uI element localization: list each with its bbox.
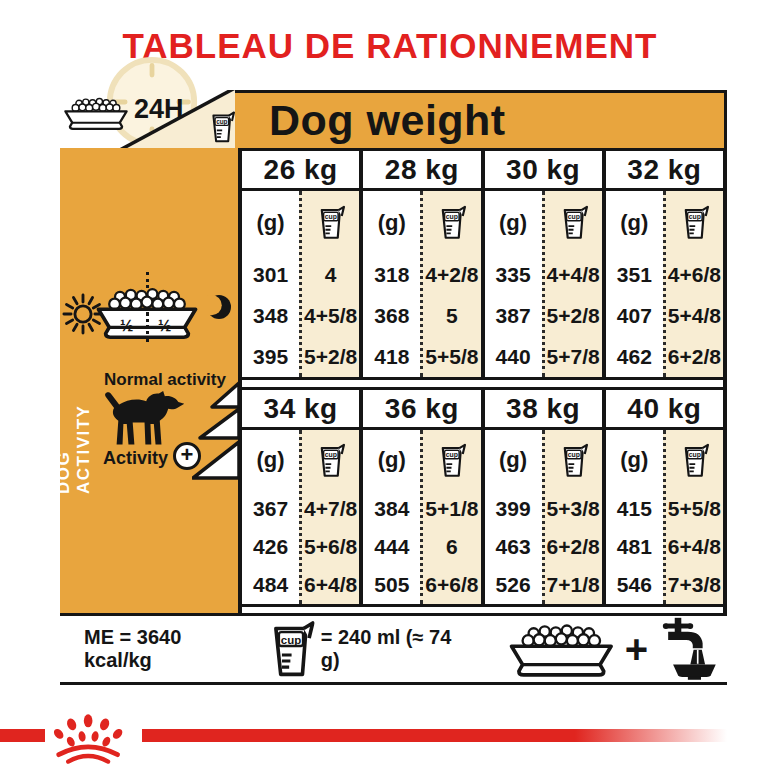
weight-header: 30 kg [485,151,602,191]
grams-unit-label: (g) [620,210,648,236]
measuring-cup-icon [559,205,588,240]
weight-column-32kg: 32 kg (g) 351 407 462 4+6/8 5 [606,151,723,377]
weights-grid: 26 kg (g) 301 348 395 4 4+5/8 [238,148,727,613]
measuring-cup-icon [316,205,345,240]
weight-header: 40 kg [606,390,723,430]
weight-header: 36 kg [363,390,480,430]
cups-value: 4+5/8 [302,295,359,336]
dog-weight-header: Dog weight [235,90,727,148]
grams-value: 463 [485,528,542,566]
cups-value: 4+6/8 [666,254,723,295]
weight-label: 34 kg [264,393,338,425]
weight-label: 30 kg [506,154,580,186]
grams-value: 384 [363,490,420,528]
grams-unit-label: (g) [620,447,648,473]
metabolizable-energy-label: ME = 3640 kcal/kg [84,626,244,672]
cups-subcolumn: 4+2/8 5 5+5/8 [420,191,480,377]
cups-value: 5+7/8 [545,336,602,377]
weight-column-34kg: 34 kg (g) 367 426 484 4+7/8 5 [242,390,363,604]
grams-unit-label: (g) [378,447,406,473]
rationing-table: 24H Dog weight DOG ACTIVITY ½ ½ [60,90,727,685]
grams-unit-label: (g) [499,210,527,236]
cups-value: 6+6/8 [423,566,480,604]
cups-value: 5+2/8 [302,336,359,377]
weight-column-26kg: 26 kg (g) 301 348 395 4 4+5/8 [242,151,363,377]
grams-value: 407 [606,295,663,336]
rationing-chart-page: TABLEAU DE RATIONNEMENT 24H Dog weight D… [0,0,780,780]
brand-stripe-left [0,729,45,742]
grams-value: 399 [485,490,542,528]
half-ration-right-label: ½ [158,317,171,335]
grams-value: 301 [242,254,299,295]
weight-label: 26 kg [264,154,338,186]
grams-value: 426 [242,528,299,566]
cups-value: 5 [423,295,480,336]
measuring-cup-icon [437,205,466,240]
food-bowl-icon [62,94,130,132]
cups-value: 6 [423,528,480,566]
grams-value: 418 [363,336,420,377]
grams-unit-label: (g) [257,210,285,236]
dog-weight-title: Dog weight [235,96,506,145]
food-bowl-icon [506,618,617,680]
activity-plus-label: Activity [103,448,168,469]
cups-value: 5+3/8 [545,490,602,528]
weight-label: 28 kg [385,154,459,186]
measuring-cup-icon [437,443,466,478]
cups-value: 7+3/8 [666,566,723,604]
weight-header: 38 kg [485,390,602,430]
weight-header: 32 kg [606,151,723,191]
cups-subcolumn: 4+4/8 5+2/8 5+7/8 [542,191,602,377]
table-header-band: 24H Dog weight [60,90,727,148]
weight-label: 36 kg [385,393,459,425]
cups-value: 7+1/8 [545,566,602,604]
cups-value: 5+5/8 [666,490,723,528]
cup-equivalence-label: = 240 ml (≈ 74 g) [321,626,466,672]
grams-unit-label: (g) [257,447,285,473]
measuring-cup-icon [316,443,345,478]
cups-value: 4+7/8 [302,490,359,528]
weight-column-40kg: 40 kg (g) 415 481 546 5+5/8 6 [606,390,723,604]
grams-subcolumn: (g) 415 481 546 [606,430,663,604]
grams-unit-label: (g) [499,447,527,473]
grams-subcolumn: (g) 351 407 462 [606,191,663,377]
grams-subcolumn: (g) 399 463 526 [485,430,542,604]
dog-silhouette-icon [98,390,186,448]
cups-value: 6+4/8 [666,528,723,566]
grams-value: 415 [606,490,663,528]
weights-section-2: 34 kg (g) 367 426 484 4+7/8 5 [242,387,723,607]
cups-value: 5+1/8 [423,490,480,528]
grams-value: 387 [485,295,542,336]
cups-value: 5+6/8 [302,528,359,566]
dog-activity-sidebar: DOG ACTIVITY ½ ½ Normal activity Activit… [60,148,238,613]
grams-subcolumn: (g) 301 348 395 [242,191,299,377]
measuring-cup-icon [208,110,235,144]
measuring-cup-icon [266,620,315,678]
section-gap [242,380,723,387]
daily-ration-label: 24H [134,94,184,125]
grams-value: 351 [606,254,663,295]
weight-column-28kg: 28 kg (g) 318 368 418 4+2/8 5 [363,151,484,377]
grams-value: 348 [242,295,299,336]
cups-subcolumn: 5+3/8 6+2/8 7+1/8 [542,430,602,604]
cups-subcolumn: 4+6/8 5+4/8 6+2/8 [663,191,723,377]
grams-value: 484 [242,566,299,604]
weight-column-38kg: 38 kg (g) 399 463 526 5+3/8 6 [485,390,606,604]
cups-value: 6+4/8 [302,566,359,604]
measuring-cup-icon [680,443,709,478]
grams-value: 505 [363,566,420,604]
weight-header: 26 kg [242,151,359,191]
weight-column-30kg: 30 kg (g) 335 387 440 4+4/8 5 [485,151,606,377]
grams-value: 318 [363,254,420,295]
activity-ramp-icons [192,381,240,481]
half-ration-left-label: ½ [120,317,133,335]
grams-subcolumn: (g) 335 387 440 [485,191,542,377]
measuring-cup-icon [559,443,588,478]
cups-value: 5+2/8 [545,295,602,336]
grams-value: 462 [606,336,663,377]
cups-subcolumn: 5+5/8 6+4/8 7+3/8 [663,430,723,604]
cups-value: 4+2/8 [423,254,480,295]
dog-activity-axis-label: DOG ACTIVITY [62,358,86,494]
plus-sign: + [625,627,648,672]
grams-value: 368 [363,295,420,336]
legend-footer: ME = 3640 kcal/kg = 240 ml (≈ 74 g) + [60,613,727,685]
grams-value: 367 [242,490,299,528]
measuring-cup-icon [680,205,709,240]
grams-value: 546 [606,566,663,604]
cups-subcolumn: 4 4+5/8 5+2/8 [299,191,359,377]
cups-value: 5+4/8 [666,295,723,336]
brand-stripe-right [142,729,727,742]
grams-subcolumn: (g) 318 368 418 [363,191,420,377]
cups-value: 4 [302,254,359,295]
half-split-dotted-line [146,312,149,342]
grams-value: 395 [242,336,299,377]
weight-label: 40 kg [627,393,701,425]
weight-header: 34 kg [242,390,359,430]
grams-subcolumn: (g) 367 426 484 [242,430,299,604]
weight-label: 38 kg [506,393,580,425]
grams-value: 440 [485,336,542,377]
grams-value: 481 [606,528,663,566]
cups-subcolumn: 4+7/8 5+6/8 6+4/8 [299,430,359,604]
grams-subcolumn: (g) 384 444 505 [363,430,420,604]
weight-column-36kg: 36 kg (g) 384 444 505 5+1/8 6 [363,390,484,604]
cups-value: 6+2/8 [666,336,723,377]
cups-value: 5+5/8 [423,336,480,377]
weight-label: 32 kg [627,154,701,186]
water-tap-icon [652,617,727,681]
grams-value: 444 [363,528,420,566]
grams-unit-label: (g) [378,210,406,236]
grams-value: 526 [485,566,542,604]
cups-value: 4+4/8 [545,254,602,295]
weight-header: 28 kg [363,151,480,191]
moon-icon [207,292,231,322]
royal-canin-crown-icon [50,700,128,766]
grams-value: 335 [485,254,542,295]
cups-value: 6+2/8 [545,528,602,566]
weights-section-1: 26 kg (g) 301 348 395 4 4+5/8 [242,148,723,380]
cups-subcolumn: 5+1/8 6 6+6/8 [420,430,480,604]
